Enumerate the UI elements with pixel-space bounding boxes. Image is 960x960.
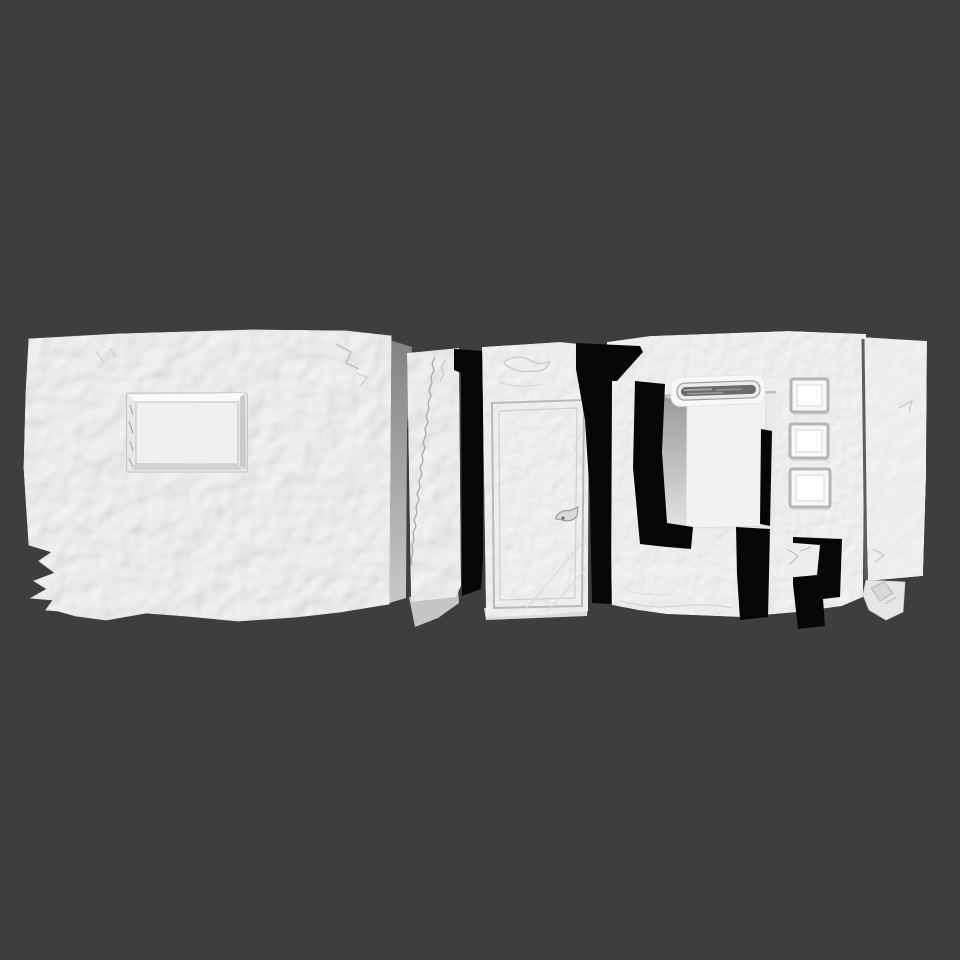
square-inset-3 (790, 469, 830, 509)
mesh-left-slab (24, 330, 412, 621)
doorway-recess (657, 392, 776, 531)
square-2-face (796, 430, 822, 452)
niche-rim-shadow-bottom (132, 463, 243, 470)
arch-white-cap (782, 542, 820, 578)
left-slab-surface (24, 330, 391, 621)
mail-slot (671, 374, 766, 406)
niche-rim-shadow-right (240, 394, 246, 469)
left-slab-niche (127, 393, 248, 472)
mesh-door-panel (482, 342, 589, 620)
recess-inner-panel (686, 397, 766, 528)
square-inset-2 (790, 424, 828, 460)
right-slab-surface (861, 337, 927, 581)
square-3-face (796, 475, 824, 501)
mesh-console-panel (576, 331, 866, 629)
door-handle-dot (561, 516, 564, 519)
mesh-crack-strip (407, 348, 461, 627)
door-panel-surface (482, 342, 589, 617)
square-1-face (797, 385, 822, 406)
niche-cavity (136, 402, 238, 464)
mesh-hole-band (736, 527, 770, 620)
mesh-hole-sliver (760, 429, 772, 526)
render-stage (0, 0, 960, 960)
viewport-3d[interactable] (0, 0, 960, 960)
square-inset-1 (791, 379, 828, 414)
crack-strip-surface (407, 348, 461, 602)
